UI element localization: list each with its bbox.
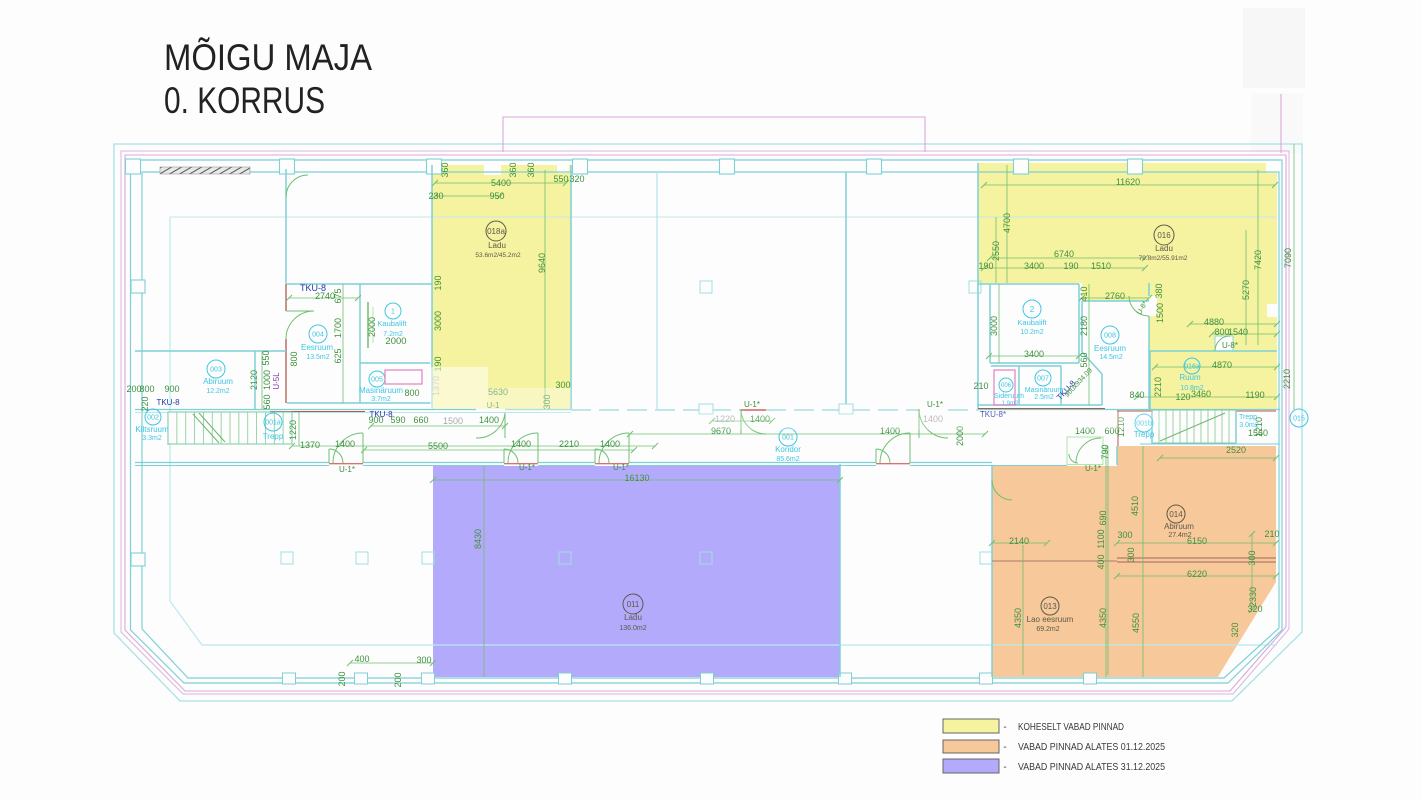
svg-text:U-5L: U-5L bbox=[272, 372, 281, 390]
svg-text:1.9m2: 1.9m2 bbox=[1002, 401, 1019, 407]
svg-text:-: - bbox=[1003, 762, 1006, 773]
svg-text:220: 220 bbox=[140, 396, 150, 411]
svg-text:2740: 2740 bbox=[315, 291, 335, 301]
svg-text:200: 200 bbox=[337, 671, 347, 686]
svg-text:4550: 4550 bbox=[1131, 613, 1141, 633]
svg-text:120: 120 bbox=[1175, 392, 1190, 402]
svg-text:16130: 16130 bbox=[624, 473, 649, 483]
svg-text:840: 840 bbox=[1129, 390, 1144, 400]
svg-text:3000: 3000 bbox=[989, 316, 999, 336]
svg-text:015: 015 bbox=[1293, 415, 1305, 422]
svg-text:2210: 2210 bbox=[1153, 377, 1163, 397]
svg-text:4350: 4350 bbox=[1013, 608, 1023, 628]
svg-text:Masinäruum: Masinäruum bbox=[359, 386, 403, 395]
svg-text:013: 013 bbox=[1043, 602, 1057, 611]
svg-text:2210: 2210 bbox=[559, 439, 579, 449]
svg-text:5400: 5400 bbox=[491, 178, 511, 188]
svg-text:Kaubalift: Kaubalift bbox=[1017, 318, 1047, 327]
svg-text:1510: 1510 bbox=[1091, 261, 1111, 271]
svg-text:002: 002 bbox=[147, 414, 159, 421]
svg-text:006: 006 bbox=[1001, 383, 1012, 389]
svg-text:2520: 2520 bbox=[1226, 445, 1246, 455]
svg-text:3400: 3400 bbox=[1024, 349, 1044, 359]
svg-text:016: 016 bbox=[1157, 231, 1171, 240]
svg-text:2180: 2180 bbox=[1079, 316, 1089, 336]
svg-text:Trepp: Trepp bbox=[1134, 430, 1155, 439]
svg-text:2140: 2140 bbox=[1009, 536, 1029, 546]
svg-text:2760: 2760 bbox=[1105, 291, 1125, 301]
svg-text:2550: 2550 bbox=[991, 241, 1001, 261]
svg-text:3000: 3000 bbox=[433, 311, 443, 331]
svg-text:200: 200 bbox=[393, 672, 403, 687]
svg-text:400: 400 bbox=[354, 654, 369, 664]
svg-text:VABAD PINNAD ALATES 31.12.2025: VABAD PINNAD ALATES 31.12.2025 bbox=[1018, 761, 1165, 773]
svg-text:4870: 4870 bbox=[1212, 360, 1232, 370]
svg-text:005: 005 bbox=[371, 376, 383, 383]
svg-text:1560: 1560 bbox=[1248, 428, 1268, 438]
svg-text:300: 300 bbox=[416, 655, 431, 665]
svg-text:Eesruum: Eesruum bbox=[1094, 344, 1126, 353]
svg-text:690: 690 bbox=[1098, 510, 1108, 525]
svg-text:11620: 11620 bbox=[1116, 177, 1140, 187]
svg-text:7420: 7420 bbox=[1253, 250, 1263, 270]
svg-text:675: 675 bbox=[333, 288, 343, 303]
svg-text:10.2m2: 10.2m2 bbox=[1020, 329, 1043, 336]
svg-text:1190: 1190 bbox=[1245, 390, 1264, 400]
svg-text:360: 360 bbox=[526, 162, 536, 177]
svg-text:560: 560 bbox=[262, 394, 272, 409]
svg-text:190: 190 bbox=[978, 261, 993, 271]
svg-text:550: 550 bbox=[261, 350, 271, 365]
svg-text:Ladu: Ladu bbox=[1155, 244, 1173, 253]
svg-text:Ruum: Ruum bbox=[1179, 373, 1201, 382]
svg-text:5270: 5270 bbox=[1241, 280, 1251, 300]
svg-text:800: 800 bbox=[289, 351, 299, 366]
svg-text:Abiruum: Abiruum bbox=[203, 377, 233, 386]
svg-text:7.2m2: 7.2m2 bbox=[383, 331, 403, 338]
svg-text:U-1*: U-1* bbox=[1085, 464, 1101, 473]
svg-text:001a: 001a bbox=[265, 419, 281, 426]
svg-text:9640: 9640 bbox=[537, 253, 547, 273]
svg-text:560: 560 bbox=[1079, 352, 1089, 367]
svg-text:2210: 2210 bbox=[1282, 369, 1292, 389]
svg-text:12.2m2: 12.2m2 bbox=[206, 388, 229, 395]
svg-text:4880: 4880 bbox=[1204, 317, 1224, 327]
svg-text:1370: 1370 bbox=[300, 440, 320, 450]
svg-text:230: 230 bbox=[428, 191, 443, 201]
svg-text:53.6m2/45.2m2: 53.6m2/45.2m2 bbox=[475, 252, 521, 259]
svg-text:1: 1 bbox=[391, 308, 395, 315]
svg-text:950: 950 bbox=[489, 191, 504, 201]
svg-text:1400: 1400 bbox=[511, 439, 531, 449]
svg-text:1000: 1000 bbox=[262, 370, 272, 390]
svg-text:3.0m2: 3.0m2 bbox=[1239, 422, 1259, 429]
svg-text:018a: 018a bbox=[487, 227, 505, 236]
svg-text:Masinäruum: Masinäruum bbox=[1025, 387, 1064, 394]
svg-text:7090: 7090 bbox=[1283, 248, 1293, 268]
svg-text:210: 210 bbox=[1264, 529, 1279, 539]
svg-text:Ladu: Ladu bbox=[624, 613, 642, 622]
svg-text:190: 190 bbox=[433, 275, 443, 290]
svg-text:900: 900 bbox=[164, 384, 179, 394]
svg-text:400: 400 bbox=[1096, 554, 1106, 569]
svg-text:300: 300 bbox=[1247, 550, 1257, 565]
svg-text:320: 320 bbox=[1247, 604, 1262, 614]
svg-text:3400: 3400 bbox=[1024, 261, 1044, 271]
svg-text:6740: 6740 bbox=[1054, 249, 1074, 259]
svg-text:14.5m2: 14.5m2 bbox=[1099, 354, 1122, 361]
svg-text:660: 660 bbox=[413, 415, 428, 425]
svg-text:3.7m2: 3.7m2 bbox=[371, 396, 391, 403]
svg-text:TKU-8: TKU-8 bbox=[156, 398, 180, 407]
svg-text:1220: 1220 bbox=[288, 420, 298, 440]
svg-text:300: 300 bbox=[1126, 547, 1136, 562]
svg-text:Trepp: Trepp bbox=[263, 432, 284, 441]
svg-text:Abiruum: Abiruum bbox=[1164, 522, 1194, 531]
svg-text:Kiltsruum: Kiltsruum bbox=[135, 425, 169, 434]
svg-text:1500: 1500 bbox=[1155, 303, 1165, 323]
svg-text:001: 001 bbox=[782, 434, 794, 441]
svg-text:410: 410 bbox=[1079, 286, 1089, 301]
svg-text:U-1*: U-1* bbox=[519, 463, 535, 472]
svg-text:008: 008 bbox=[1104, 332, 1116, 339]
svg-text:U-1*: U-1* bbox=[613, 463, 629, 472]
svg-text:69.2m2: 69.2m2 bbox=[1036, 626, 1059, 633]
svg-text:4350: 4350 bbox=[1098, 608, 1108, 628]
svg-text:590: 590 bbox=[390, 415, 405, 425]
svg-text:625: 625 bbox=[333, 348, 343, 363]
svg-text:Ladu: Ladu bbox=[488, 241, 506, 250]
svg-text:4510: 4510 bbox=[1130, 496, 1140, 516]
svg-text:1400: 1400 bbox=[335, 439, 355, 449]
svg-text:007: 007 bbox=[1037, 375, 1049, 382]
svg-text:014: 014 bbox=[1169, 510, 1183, 519]
svg-text:1100: 1100 bbox=[1096, 529, 1106, 548]
svg-text:U-1*: U-1* bbox=[744, 400, 760, 409]
svg-text:1700: 1700 bbox=[333, 318, 343, 338]
svg-text:1500: 1500 bbox=[443, 416, 463, 426]
svg-text:320: 320 bbox=[569, 174, 584, 184]
svg-text:300: 300 bbox=[1117, 530, 1132, 540]
svg-text:320: 320 bbox=[1230, 622, 1240, 637]
svg-text:Trepp: Trepp bbox=[1239, 414, 1257, 421]
svg-text:004: 004 bbox=[312, 331, 324, 338]
svg-text:800: 800 bbox=[404, 388, 419, 398]
svg-text:27.4m2: 27.4m2 bbox=[1168, 532, 1191, 539]
svg-text:10.8m2: 10.8m2 bbox=[1180, 385, 1203, 392]
svg-text:Lao eesruum: Lao eesruum bbox=[1027, 615, 1074, 624]
svg-text:003: 003 bbox=[210, 366, 222, 373]
svg-text:13.5m2: 13.5m2 bbox=[306, 354, 329, 361]
svg-text:KOHESELT VABAD PINNAD: KOHESELT VABAD PINNAD bbox=[1018, 721, 1124, 733]
svg-text:2: 2 bbox=[1030, 305, 1035, 314]
svg-text:U-1*: U-1* bbox=[339, 465, 355, 474]
svg-text:1400: 1400 bbox=[479, 415, 499, 425]
svg-text:Kaubalift: Kaubalift bbox=[377, 319, 407, 328]
svg-text:3.3m2: 3.3m2 bbox=[142, 435, 162, 442]
svg-text:1540: 1540 bbox=[1228, 327, 1248, 337]
svg-text:6220: 6220 bbox=[1187, 569, 1207, 579]
svg-text:Sideruum: Sideruum bbox=[994, 393, 1024, 400]
svg-text:550: 550 bbox=[553, 174, 568, 184]
svg-text:MÕIGU MAJA: MÕIGU MAJA bbox=[164, 37, 372, 78]
svg-text:2120: 2120 bbox=[249, 370, 259, 390]
svg-text:2.5m2: 2.5m2 bbox=[1034, 394, 1054, 401]
svg-text:790: 790 bbox=[1100, 444, 1110, 459]
svg-text:Eesruum: Eesruum bbox=[301, 343, 333, 352]
svg-text:360: 360 bbox=[508, 162, 518, 177]
svg-text:1400: 1400 bbox=[600, 439, 620, 449]
svg-text:5500: 5500 bbox=[428, 441, 448, 451]
svg-text:016a: 016a bbox=[1184, 363, 1200, 370]
svg-text:380: 380 bbox=[1154, 283, 1164, 298]
svg-text:79.8m2/55.91m2: 79.8m2/55.91m2 bbox=[1139, 255, 1188, 262]
svg-text:360: 360 bbox=[440, 162, 450, 177]
svg-text:136.0m2: 136.0m2 bbox=[619, 625, 646, 632]
svg-text:4700: 4700 bbox=[1002, 213, 1012, 233]
svg-text:2000: 2000 bbox=[367, 317, 377, 337]
svg-text:800: 800 bbox=[139, 384, 154, 394]
svg-text:VABAD PINNAD ALATES 01.12.2025: VABAD PINNAD ALATES 01.12.2025 bbox=[1018, 741, 1165, 753]
svg-text:900: 900 bbox=[368, 415, 383, 425]
svg-text:190: 190 bbox=[1063, 261, 1078, 271]
svg-text:85.6m2: 85.6m2 bbox=[776, 456, 799, 463]
svg-text:U-8*: U-8* bbox=[1222, 341, 1238, 350]
svg-text:8430: 8430 bbox=[473, 529, 483, 549]
svg-text:011: 011 bbox=[627, 600, 640, 609]
svg-text:-: - bbox=[1003, 742, 1006, 753]
svg-text:0. KORRUS: 0. KORRUS bbox=[164, 80, 325, 121]
svg-text:U-1*: U-1* bbox=[927, 400, 943, 409]
svg-text:-: - bbox=[1003, 722, 1006, 733]
svg-text:Koridor: Koridor bbox=[775, 445, 801, 454]
svg-text:210: 210 bbox=[973, 381, 988, 391]
